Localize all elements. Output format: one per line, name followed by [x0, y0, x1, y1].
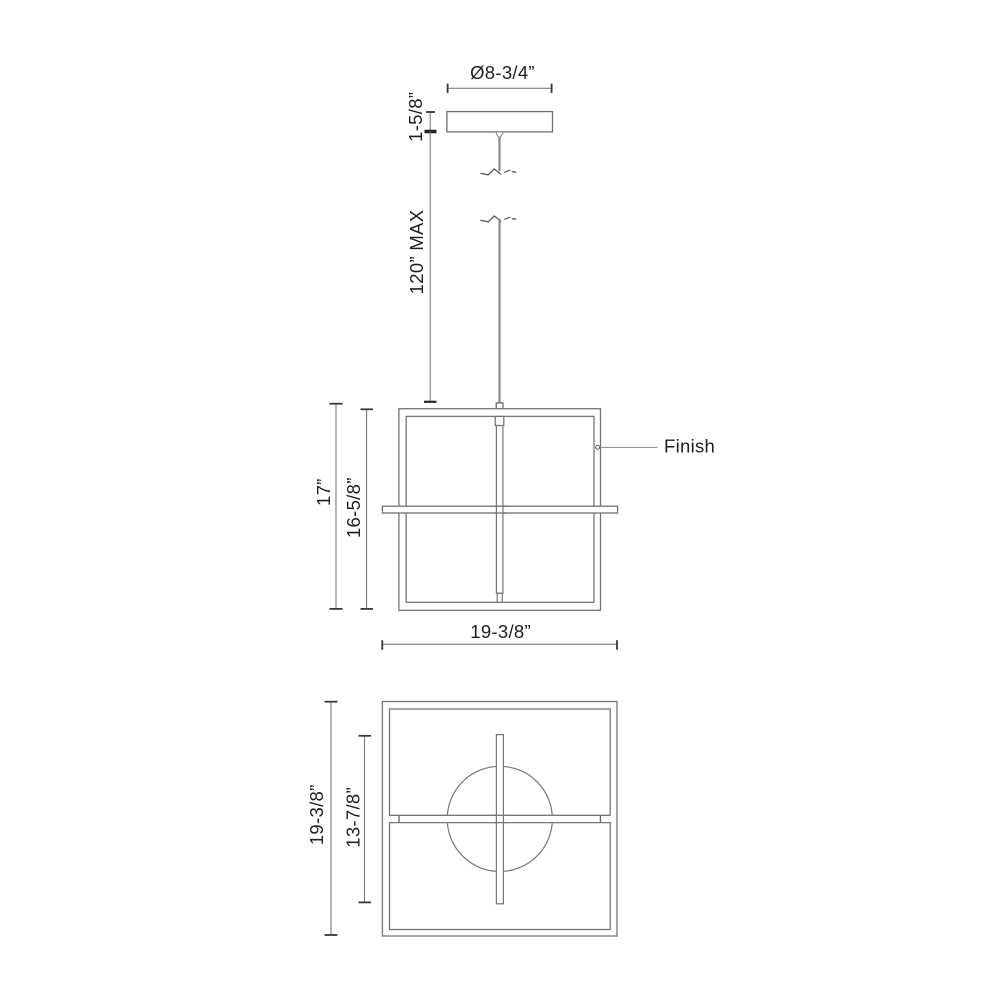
svg-text:Finish: Finish	[664, 435, 715, 456]
svg-text:19-3/8”: 19-3/8”	[470, 621, 531, 642]
svg-text:13-7/8”: 13-7/8”	[343, 787, 364, 848]
svg-text:19-3/8”: 19-3/8”	[306, 784, 327, 845]
svg-text:Ø8-3/4”: Ø8-3/4”	[470, 62, 535, 83]
svg-text:16-5/8”: 16-5/8”	[343, 477, 364, 538]
svg-text:17”: 17”	[313, 478, 334, 506]
svg-text:120” MAX: 120” MAX	[406, 210, 427, 295]
svg-text:1-5/8”: 1-5/8”	[405, 92, 426, 142]
